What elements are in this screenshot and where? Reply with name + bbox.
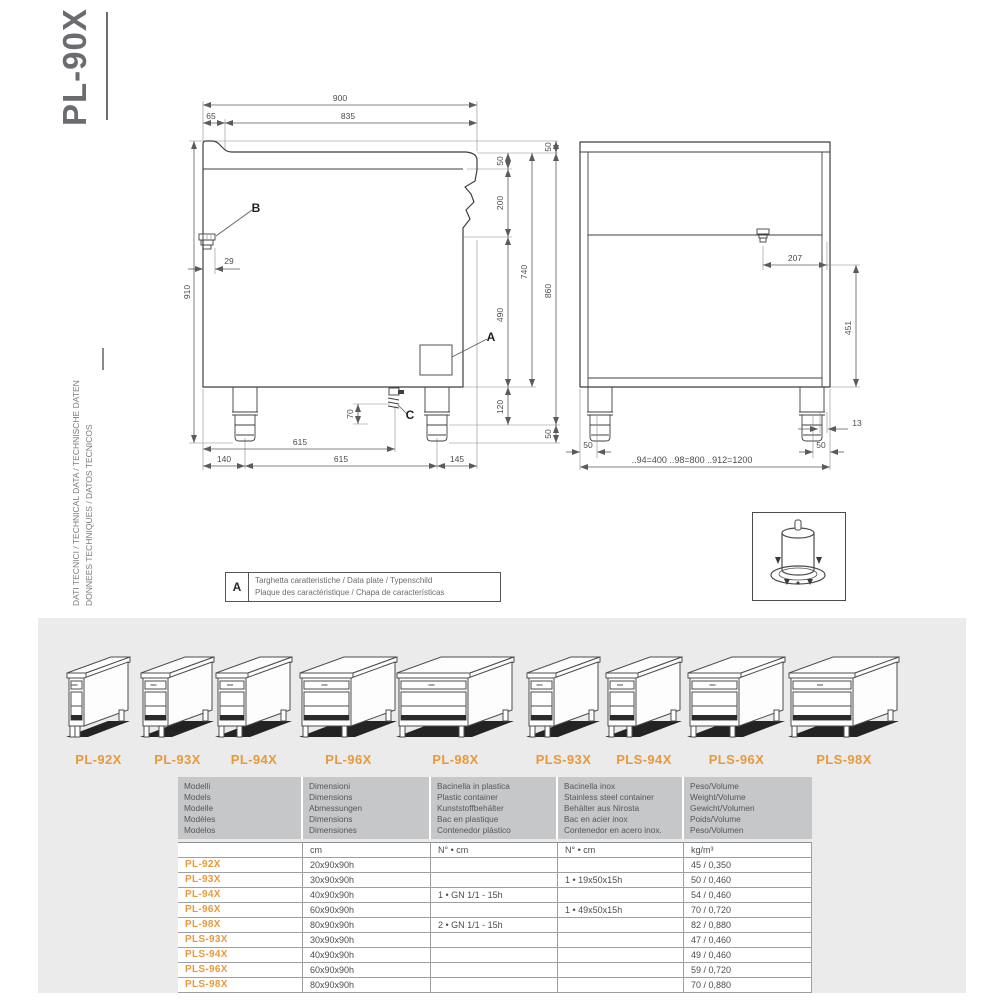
- dim-910: 910: [182, 285, 192, 299]
- dim-740: 740: [519, 265, 529, 279]
- legend-line-1: Targhetta caratteristiche / Data plate /…: [255, 576, 432, 585]
- unit-cell: [178, 843, 303, 858]
- cabinet-drawing: [686, 656, 787, 741]
- legend-data-plate: A Targhetta caratteristiche / Data plate…: [225, 572, 501, 602]
- cabinet-drawing: [214, 656, 294, 741]
- sidebar-tech-data-label: DATI TECNICI / TECHNICAL DATA / TECHNISC…: [70, 406, 98, 606]
- value-cell: [431, 933, 558, 948]
- leg-icon: [753, 513, 844, 599]
- dim-615-lower: 615: [334, 454, 348, 464]
- legend-line-2: Plaque des caractéristique / Chapa de ca…: [255, 588, 444, 597]
- side-body-outline: [580, 142, 830, 387]
- model-cell: PL-96X: [178, 903, 303, 918]
- dim-900: 900: [333, 93, 347, 103]
- product-label: PL-93X: [139, 752, 216, 767]
- dim-200: 200: [495, 196, 505, 210]
- sidebar-line-1: DATI TECNICI / TECHNICAL DATA / TECHNISC…: [71, 380, 81, 606]
- spec-table-header: Modelli Models Modelle Modèles ModelosDi…: [178, 777, 812, 839]
- cabinet-drawing: [65, 656, 132, 741]
- product-thumbnail: PLS-98X: [787, 656, 901, 767]
- unit-cell: cm: [303, 843, 431, 858]
- value-cell: 40x90x90h: [303, 888, 431, 903]
- table-row: PL-93X30x90x90h1 • 19x50x15h50 / 0,460: [178, 873, 812, 888]
- unit-cell: N° • cm: [431, 843, 558, 858]
- table-row: PLS-94X40x90x90h49 / 0,460: [178, 948, 812, 963]
- product-label: PLS-96X: [686, 752, 787, 767]
- value-cell: 47 / 0,460: [684, 933, 812, 948]
- product-thumbnail: PL-96X: [298, 656, 399, 767]
- product-thumbnail: PL-92X: [65, 656, 132, 767]
- value-cell: [431, 858, 558, 873]
- product-label: PL-94X: [214, 752, 294, 767]
- spec-table-body: PL-92X20x90x90h45 / 0,350PL-93X30x90x90h…: [178, 858, 812, 993]
- product-label: PL-92X: [65, 752, 132, 767]
- dim-145: 145: [450, 454, 464, 464]
- value-cell: 59 / 0,720: [684, 963, 812, 978]
- product-label: PLS-94X: [604, 752, 684, 767]
- leg-detail-box: [752, 512, 846, 601]
- value-cell: 30x90x90h: [303, 873, 431, 888]
- value-cell: 50 / 0,460: [684, 873, 812, 888]
- dim-615-upper: 615: [293, 437, 307, 447]
- cabinet-drawing: [395, 656, 516, 741]
- table-row: PL-96X60x90x90h1 • 49x50x15h70 / 0,720: [178, 903, 812, 918]
- model-cell: PL-92X: [178, 858, 303, 873]
- dim-490: 490: [495, 308, 505, 322]
- product-label: PLS-93X: [525, 752, 602, 767]
- value-cell: [558, 948, 684, 963]
- table-row: PL-94X40x90x90h1 • GN 1/1 - 15h54 / 0,46…: [178, 888, 812, 903]
- value-cell: 60x90x90h: [303, 903, 431, 918]
- value-cell: 60x90x90h: [303, 963, 431, 978]
- value-cell: 70 / 0,880: [684, 978, 812, 993]
- header-cell: Bacinella inox Stainless steel container…: [558, 777, 684, 839]
- label-a: A: [487, 330, 496, 344]
- value-cell: [558, 963, 684, 978]
- model-cell: PLS-98X: [178, 978, 303, 993]
- product-thumbnail: PLS-93X: [525, 656, 602, 767]
- front-body-outline: [203, 141, 477, 387]
- label-c: C: [406, 408, 415, 422]
- unit-cell: kg/m³: [684, 843, 812, 858]
- value-cell: 1 • 49x50x15h: [558, 903, 684, 918]
- model-cell: PLS-93X: [178, 933, 303, 948]
- product-label: PL-98X: [395, 752, 516, 767]
- unit-cell: N° • cm: [558, 843, 684, 858]
- side-tap: [757, 229, 769, 242]
- product-thumbnail: PLS-96X: [686, 656, 787, 767]
- header-cell: Peso/Volume Weight/Volume Gewicht/Volume…: [684, 777, 812, 839]
- model-cell: PLS-94X: [178, 948, 303, 963]
- value-cell: 30x90x90h: [303, 933, 431, 948]
- value-cell: 20x90x90h: [303, 858, 431, 873]
- value-cell: [431, 963, 558, 978]
- cabinet-drawing: [604, 656, 684, 741]
- value-cell: 40x90x90h: [303, 948, 431, 963]
- dim-451: 451: [843, 321, 853, 335]
- cabinet-drawing: [139, 656, 216, 741]
- cabinet-drawing: [787, 656, 901, 741]
- value-cell: 1 • GN 1/1 - 15h: [431, 888, 558, 903]
- value-cell: [558, 858, 684, 873]
- dim-50-top: 50: [543, 142, 553, 152]
- dim-29: 29: [224, 256, 234, 266]
- legend-key: A: [226, 573, 249, 601]
- dim-65: 65: [206, 111, 216, 121]
- header-cell: Bacinella in plastica Plastic container …: [431, 777, 558, 839]
- product-thumbnail: PLS-94X: [604, 656, 684, 767]
- product-thumbnail: PL-98X: [395, 656, 516, 767]
- depth-variants-note: ..94=400 ..98=800 ..912=1200: [632, 455, 753, 465]
- value-cell: 70 / 0,720: [684, 903, 812, 918]
- value-cell: [431, 873, 558, 888]
- legend-text: Targhetta caratteristiche / Data plate /…: [249, 573, 450, 601]
- spec-table: Modelli Models Modelle Modèles ModelosDi…: [178, 777, 812, 993]
- page-title: PL-90X: [56, 8, 104, 126]
- dim-13: 13: [852, 418, 862, 428]
- value-cell: 80x90x90h: [303, 978, 431, 993]
- header-cell: Modelli Models Modelle Modèles Modelos: [178, 777, 303, 839]
- header-cell: Dimensioni Dimensions Abmessungen Dimens…: [303, 777, 431, 839]
- table-row: PLS-98X80x90x90h70 / 0,880: [178, 978, 812, 993]
- dim-860: 860: [543, 284, 553, 298]
- title-rule: [106, 12, 108, 120]
- model-cell: PLS-96X: [178, 963, 303, 978]
- label-b: B: [252, 201, 261, 215]
- model-cell: PL-94X: [178, 888, 303, 903]
- dim-207: 207: [788, 253, 802, 263]
- value-cell: [431, 903, 558, 918]
- cabinet-drawing: [525, 656, 602, 741]
- value-cell: [431, 948, 558, 963]
- product-label: PL-96X: [298, 752, 399, 767]
- side-left-leg: [587, 387, 613, 441]
- table-row: PLS-96X60x90x90h59 / 0,720: [178, 963, 812, 978]
- value-cell: [558, 933, 684, 948]
- table-row: PLS-93X30x90x90h47 / 0,460: [178, 933, 812, 948]
- value-cell: [558, 888, 684, 903]
- side-right-leg: [799, 387, 825, 441]
- dim-50-left: 50: [583, 440, 593, 450]
- dim-50-counter: 50: [495, 156, 505, 166]
- value-cell: 49 / 0,460: [684, 948, 812, 963]
- dim-50-right: 50: [816, 440, 826, 450]
- value-cell: [431, 978, 558, 993]
- value-cell: 45 / 0,350: [684, 858, 812, 873]
- value-cell: [558, 918, 684, 933]
- dim-50-bottom: 50: [543, 429, 553, 439]
- technical-drawing: 900 65 835 910 29 70 50 200 490 120 740 …: [150, 85, 980, 480]
- detail-c-drain: [388, 388, 407, 414]
- front-right-leg: [424, 387, 450, 441]
- model-cell: PL-98X: [178, 918, 303, 933]
- sidebar-rule: [102, 348, 104, 370]
- dim-835: 835: [341, 111, 355, 121]
- product-label: PLS-98X: [787, 752, 901, 767]
- detail-b-tap: [199, 210, 252, 249]
- value-cell: 80x90x90h: [303, 918, 431, 933]
- spec-table-units: cmN° • cmN° • cmkg/m³: [178, 842, 812, 858]
- value-cell: 54 / 0,460: [684, 888, 812, 903]
- cabinet-drawing: [298, 656, 399, 741]
- side-view: 207 451 13 50 50 ..94=400 ..98=800 ..912…: [566, 142, 862, 470]
- value-cell: [558, 978, 684, 993]
- value-cell: 2 • GN 1/1 - 15h: [431, 918, 558, 933]
- product-thumbnail: PL-94X: [214, 656, 294, 767]
- dim-140: 140: [217, 454, 231, 464]
- dim-120: 120: [495, 400, 505, 414]
- front-left-leg: [232, 387, 258, 441]
- value-cell: 1 • 19x50x15h: [558, 873, 684, 888]
- model-cell: PL-93X: [178, 873, 303, 888]
- value-cell: 82 / 0,880: [684, 918, 812, 933]
- front-view: 900 65 835 910 29 70 50 200 490 120 740 …: [182, 93, 560, 470]
- sidebar-line-2: DONNEES TECHNIQUES / DATOS TECNICOS: [84, 424, 94, 606]
- table-row: PL-92X20x90x90h45 / 0,350: [178, 858, 812, 873]
- table-row: PL-98X80x90x90h2 • GN 1/1 - 15h82 / 0,88…: [178, 918, 812, 933]
- dim-70: 70: [345, 409, 355, 419]
- product-thumbnail: PL-93X: [139, 656, 216, 767]
